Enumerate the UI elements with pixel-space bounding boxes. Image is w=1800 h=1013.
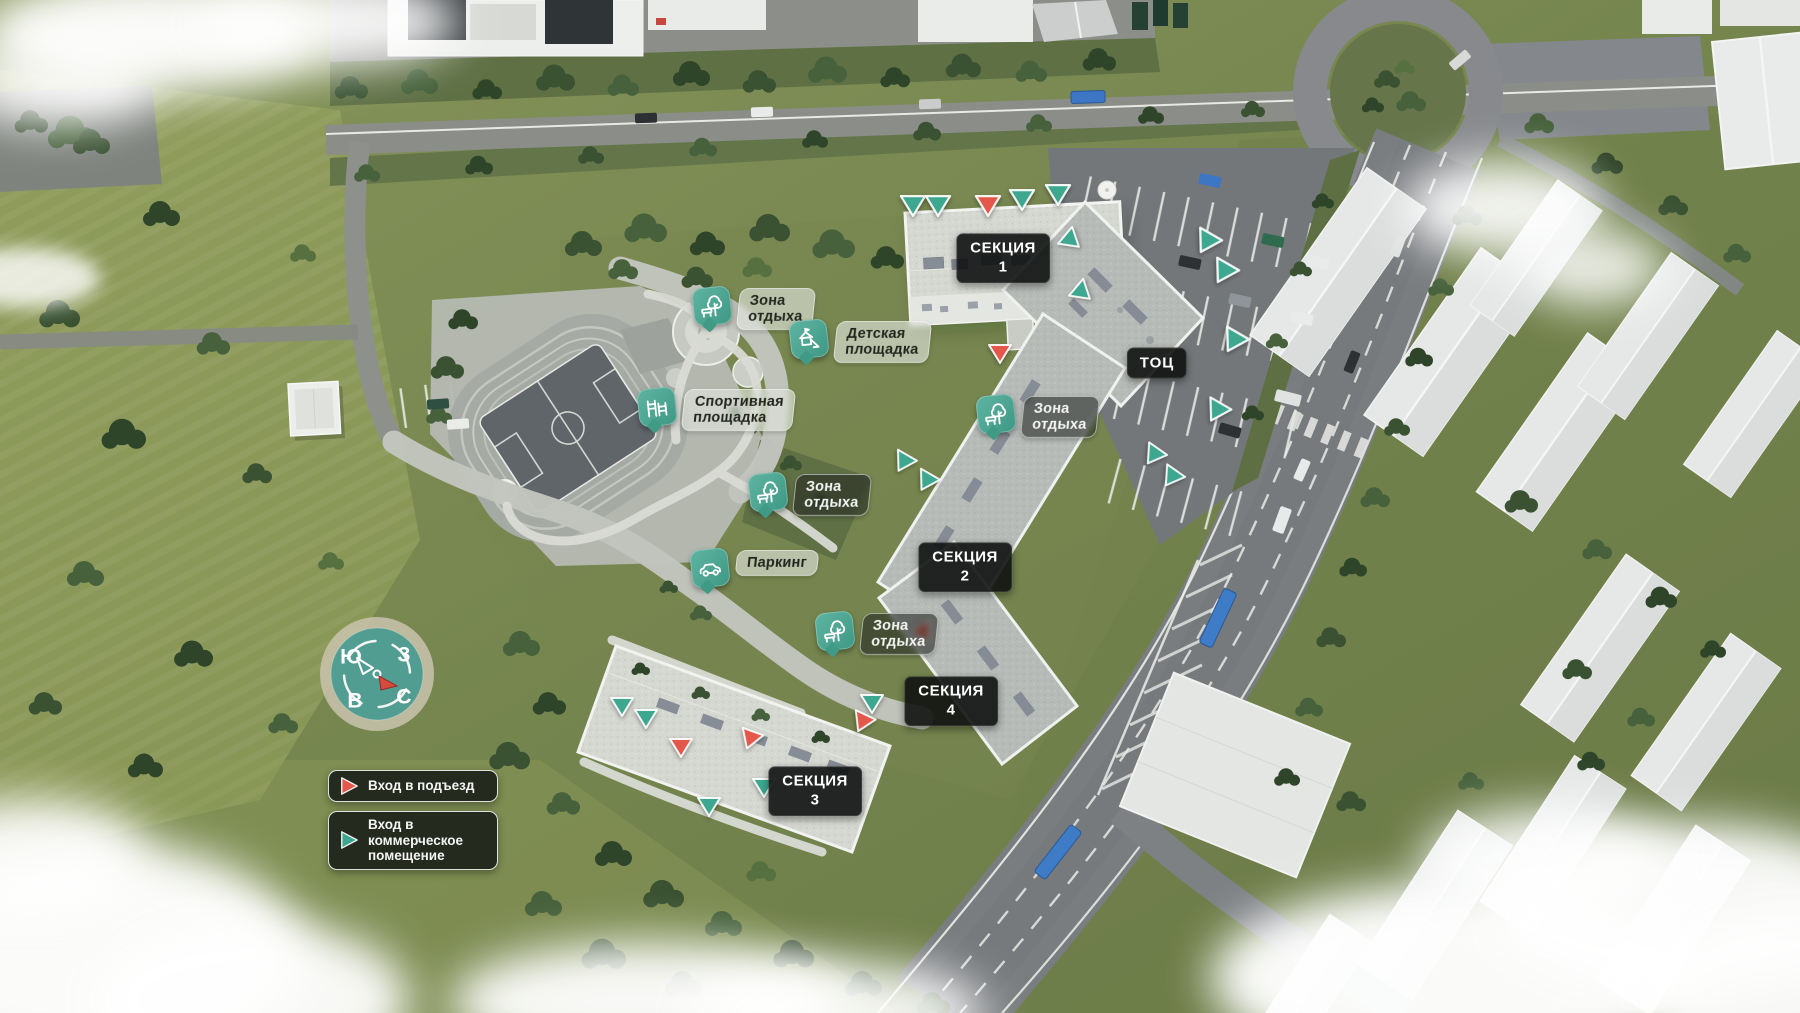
- poi-label-text: Спортивная площадка: [681, 389, 796, 431]
- section-label-3[interactable]: СЕКЦИЯ3: [768, 766, 862, 816]
- section-label-name: СЕКЦИЯ: [918, 682, 984, 701]
- section-label-4[interactable]: СЕКЦИЯ4: [904, 676, 998, 726]
- entrance-marker-commercial[interactable]: [909, 465, 944, 499]
- commercial-entrance-triangle-icon: [609, 695, 635, 719]
- tree-bench-icon: [691, 285, 733, 327]
- commercial-entrance-triangle-icon: [1197, 393, 1235, 430]
- map-legend: Вход в подъезд Вход в коммерческое помещ…: [328, 770, 498, 870]
- sport-bars-icon: [636, 386, 678, 428]
- poi-label-text: Зона отдыха: [1020, 396, 1101, 438]
- commercial-entrance-triangle-icon: [1044, 182, 1073, 208]
- entrance-marker-commercial[interactable]: [1008, 187, 1037, 213]
- poi-label-text: Паркинг: [735, 550, 819, 576]
- residential-entrance-triangle-icon: [339, 776, 359, 796]
- commercial-entrance-triangle-icon: [696, 795, 722, 819]
- poi-label-parking[interactable]: Паркинг: [691, 549, 818, 587]
- entrance-marker-commercial[interactable]: [1213, 323, 1253, 362]
- poi-label-text: Зона отдыха: [792, 474, 873, 516]
- poi-label-sport[interactable]: Спортивная площадка: [638, 388, 794, 431]
- poi-label-rest-zone-4[interactable]: Зона отдыха: [816, 612, 937, 655]
- residential-entrance-triangle-icon: [974, 193, 1003, 219]
- car-icon: [689, 547, 731, 589]
- section-label-name: СЕКЦИЯ: [782, 772, 848, 791]
- poi-label-text: Зона отдыха: [859, 613, 940, 655]
- mall-label[interactable]: ТОЦ: [1127, 348, 1187, 379]
- section-label-number: 2: [932, 567, 998, 586]
- legend-label: Вход в коммерческое помещение: [368, 817, 487, 864]
- commercial-entrance-triangle-icon: [1008, 187, 1037, 213]
- entrance-marker-commercial[interactable]: [609, 695, 635, 719]
- compass-letter-ne: З: [397, 644, 410, 667]
- entrance-marker-residential[interactable]: [668, 736, 694, 760]
- section-label-number: 3: [782, 791, 848, 810]
- genplan-overlay: Ю З В С Вход в подъезд Вход в коммерческ…: [0, 0, 1800, 1013]
- poi-label-text: Детская площадка: [833, 321, 933, 363]
- commercial-entrance-triangle-icon: [339, 830, 359, 850]
- commercial-entrance-triangle-icon: [1054, 223, 1089, 258]
- commercial-entrance-triangle-icon: [924, 193, 953, 219]
- entrance-marker-commercial[interactable]: [633, 707, 659, 731]
- residential-entrance-triangle-icon: [668, 736, 694, 760]
- legend-item-residential-entrance: Вход в подъезд: [328, 770, 498, 802]
- entrance-marker-commercial[interactable]: [1044, 182, 1073, 208]
- entrance-marker-commercial[interactable]: [1197, 393, 1235, 430]
- section-label-name: СЕКЦИЯ: [932, 548, 998, 567]
- genplan-scene: Ю З В С Вход в подъезд Вход в коммерческ…: [0, 0, 1800, 1013]
- commercial-entrance-triangle-icon: [1213, 323, 1253, 362]
- entrance-marker-residential[interactable]: [987, 342, 1013, 366]
- compass-letter-se: С: [396, 686, 411, 709]
- compass: Ю З В С: [307, 604, 447, 744]
- commercial-entrance-triangle-icon: [909, 465, 944, 499]
- tree-bench-icon: [814, 610, 856, 652]
- entrance-marker-commercial[interactable]: [924, 193, 953, 219]
- tree-bench-icon: [975, 393, 1017, 435]
- entrance-marker-commercial[interactable]: [696, 795, 722, 819]
- entrance-marker-residential[interactable]: [974, 193, 1003, 219]
- commercial-entrance-triangle-icon: [633, 707, 659, 731]
- section-label-name: СЕКЦИЯ: [970, 239, 1036, 258]
- entrance-marker-commercial[interactable]: [1065, 275, 1100, 310]
- legend-label: Вход в подъезд: [368, 778, 474, 794]
- poi-label-kids[interactable]: Детская площадка: [790, 320, 930, 363]
- section-label-1[interactable]: СЕКЦИЯ1: [956, 233, 1050, 283]
- section-label-number: 4: [918, 701, 984, 720]
- residential-entrance-triangle-icon: [987, 342, 1013, 366]
- section-label-2[interactable]: СЕКЦИЯ2: [918, 542, 1012, 592]
- section-label-number: 1: [970, 258, 1036, 277]
- compass-letter-nw: Ю: [340, 646, 362, 669]
- compass-letter-sw: В: [347, 690, 362, 713]
- entrance-marker-commercial[interactable]: [1054, 223, 1089, 258]
- tree-bench-icon: [747, 471, 789, 513]
- residential-entrance-triangle-icon: [734, 724, 767, 755]
- entrance-marker-residential[interactable]: [734, 724, 767, 755]
- playhouse-icon: [788, 318, 830, 360]
- legend-item-commercial-entrance: Вход в коммерческое помещение: [328, 811, 498, 870]
- poi-label-rest-zone-3[interactable]: Зона отдыха: [749, 473, 870, 516]
- poi-label-rest-zone-2[interactable]: Зона отдыха: [977, 395, 1098, 438]
- commercial-entrance-triangle-icon: [1065, 275, 1100, 310]
